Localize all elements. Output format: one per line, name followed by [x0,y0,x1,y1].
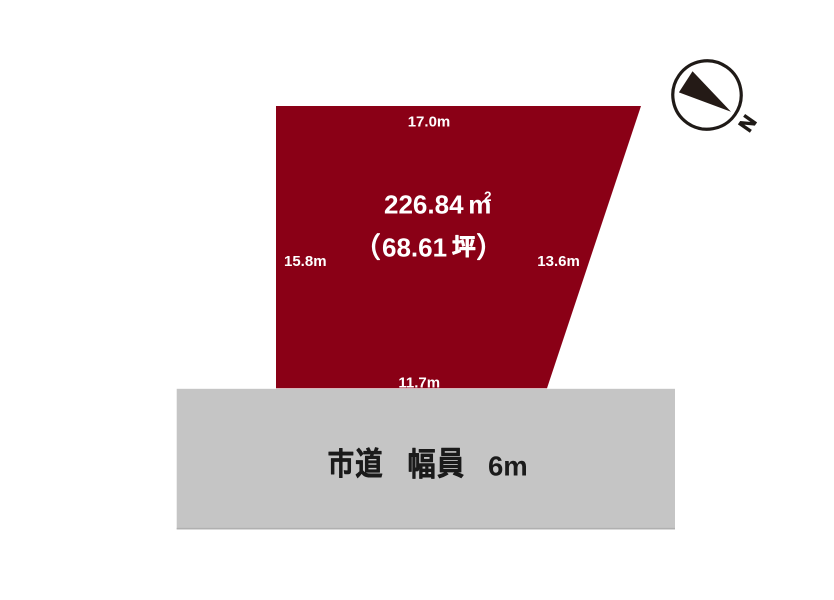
svg-text:6m: 6m [488,451,528,482]
svg-text:2: 2 [484,189,492,204]
svg-text:15.8m: 15.8m [284,253,327,270]
svg-text:226.84: 226.84 [384,190,464,220]
svg-text:17.0m: 17.0m [408,113,451,130]
svg-text:13.6m: 13.6m [537,253,580,270]
svg-text:68.61: 68.61 [382,232,447,262]
